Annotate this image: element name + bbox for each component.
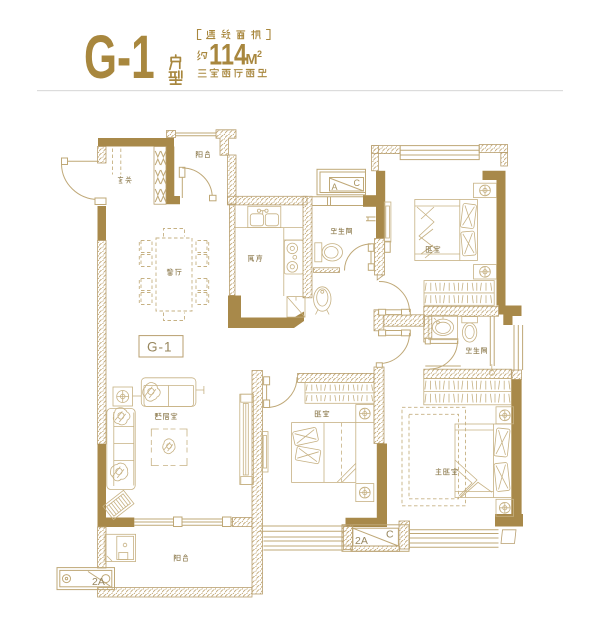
svg-text:C: C: [354, 178, 361, 188]
svg-text:2A: 2A: [355, 535, 368, 547]
svg-text:114: 114: [209, 38, 247, 71]
svg-text:A: A: [332, 182, 338, 192]
svg-text:2A: 2A: [92, 576, 105, 588]
svg-text:G-1: G-1: [147, 340, 173, 355]
svg-text:G-1: G-1: [84, 23, 155, 92]
svg-text:M: M: [246, 52, 258, 68]
svg-text:2: 2: [257, 49, 262, 59]
svg-text:C: C: [386, 529, 394, 541]
